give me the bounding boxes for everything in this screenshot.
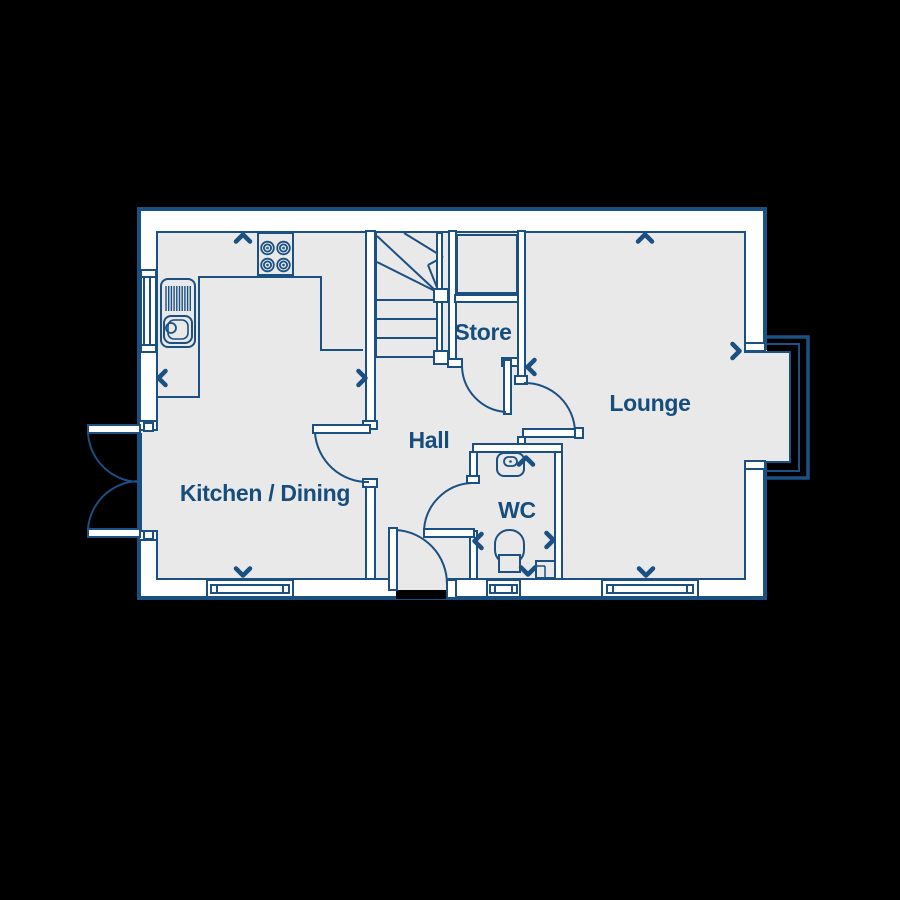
- room-label-wc: WC: [498, 497, 536, 523]
- bay-window-icon: [744, 337, 808, 478]
- room-label-store: Store: [454, 319, 511, 345]
- floor-plan: Kitchen / Dining Hall Store WC Lounge: [0, 0, 900, 900]
- floor-plan-page: Kitchen / Dining Hall Store WC Lounge: [0, 0, 900, 900]
- door-leaf: [424, 529, 474, 537]
- door-leaf: [88, 425, 140, 433]
- wc-window-icon: [487, 580, 520, 597]
- door-leaf: [313, 425, 370, 433]
- newel-post: [434, 351, 448, 364]
- newel-post: [434, 289, 448, 302]
- door-leaf: [389, 528, 397, 590]
- door-leaf: [504, 360, 511, 414]
- room-label-hall: Hall: [409, 427, 450, 453]
- door-leaf: [523, 429, 582, 437]
- side-window-icon: [141, 270, 156, 352]
- door-leaf: [88, 529, 140, 537]
- room-label-lounge: Lounge: [609, 390, 690, 416]
- french-doors-icon: [88, 421, 158, 540]
- kitchen-window-icon: [207, 580, 293, 597]
- lounge-window-icon: [602, 580, 698, 597]
- room-label-kitchen-dining: Kitchen / Dining: [180, 480, 350, 506]
